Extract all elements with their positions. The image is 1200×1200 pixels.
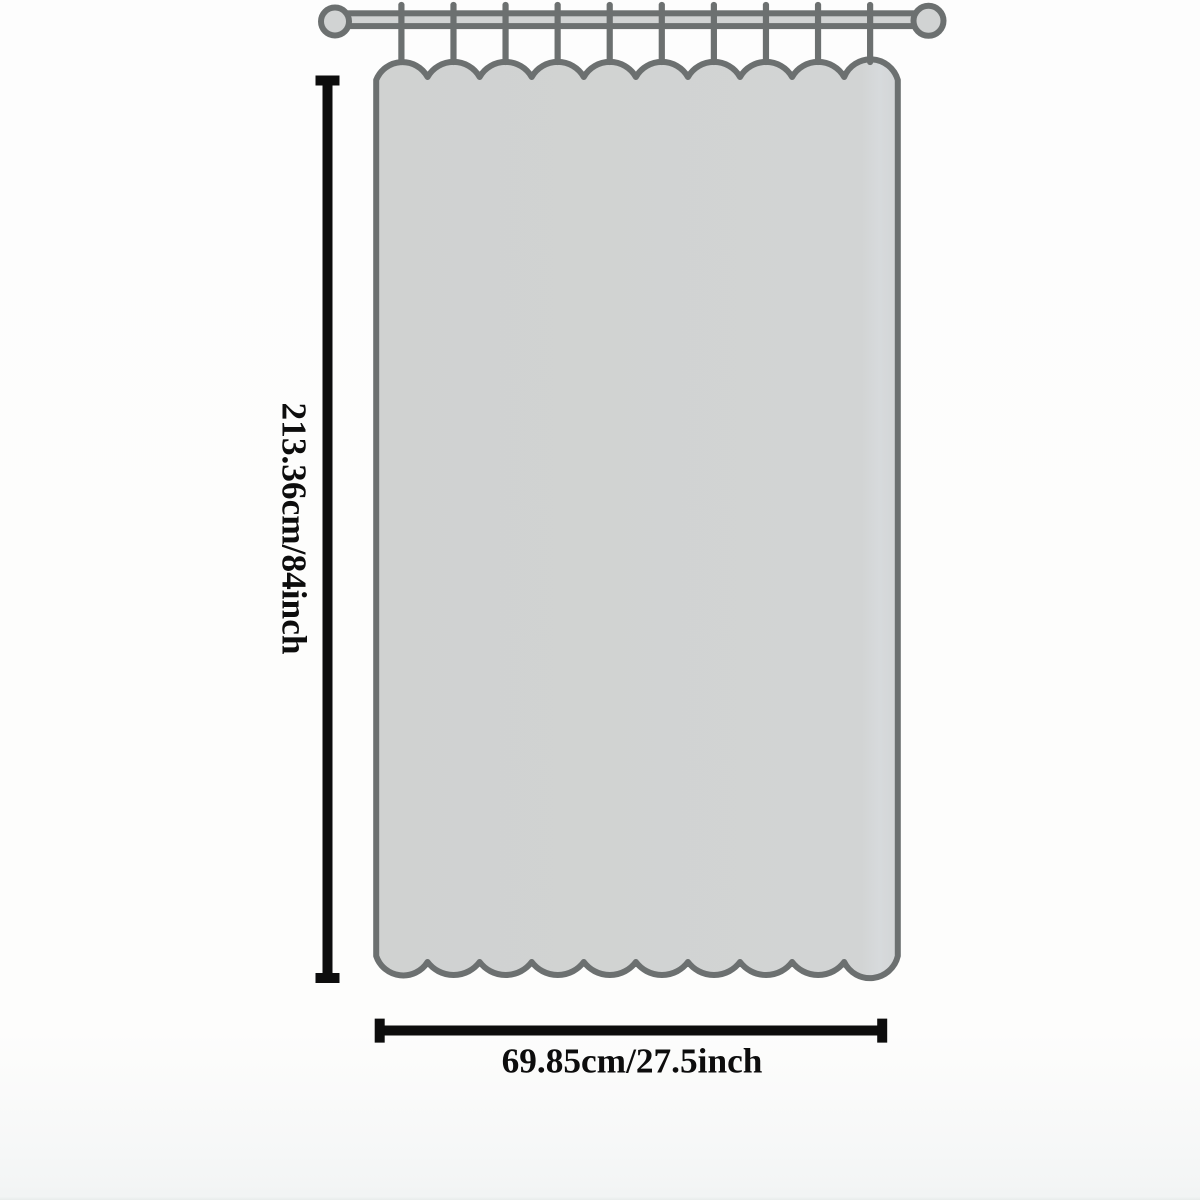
svg-text:213.36cm/84inch: 213.36cm/84inch (275, 403, 314, 655)
svg-text:69.85cm/27.5inch: 69.85cm/27.5inch (502, 1042, 763, 1081)
